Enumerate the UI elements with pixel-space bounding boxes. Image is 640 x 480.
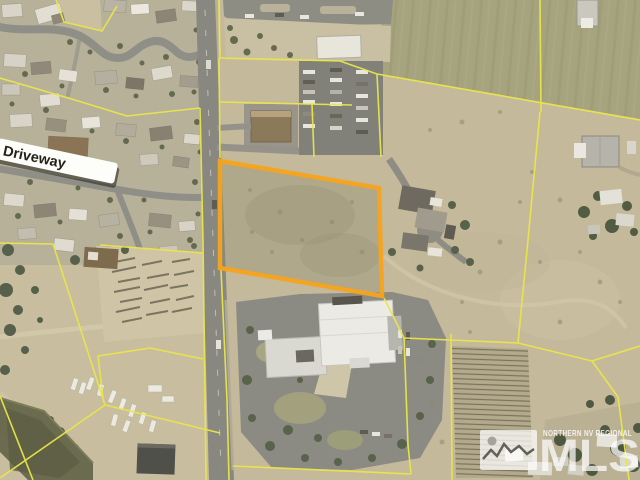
car (216, 340, 221, 349)
car (212, 200, 217, 209)
aerial-photo: Driveway NORTHERN NV REGIONAL MLS (0, 0, 640, 480)
mls-logo-text: MLS (539, 430, 640, 480)
aerial-parcel-map: Driveway NORTHERN NV REGIONAL MLS (0, 0, 640, 480)
mountain-range-icon (480, 430, 537, 470)
car (206, 60, 211, 69)
retail-building (317, 35, 362, 59)
school-campus (236, 292, 446, 470)
